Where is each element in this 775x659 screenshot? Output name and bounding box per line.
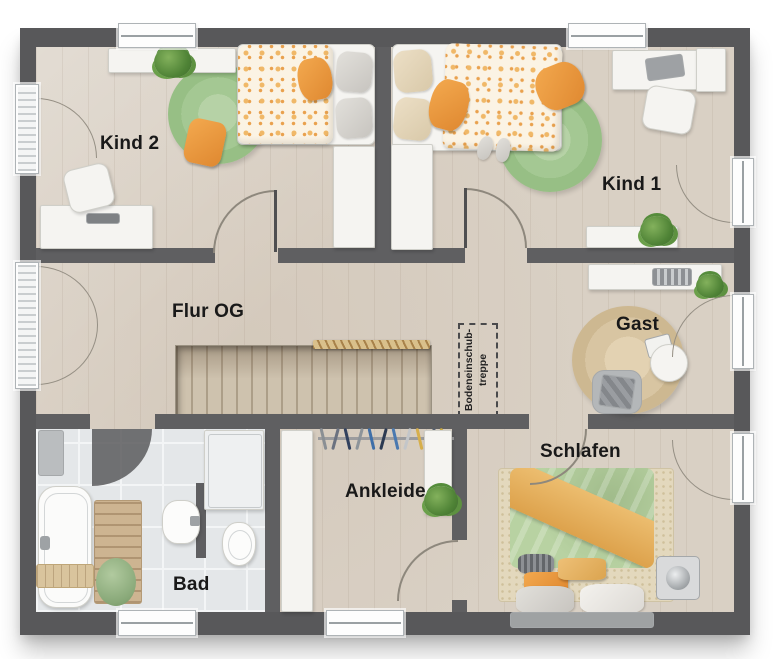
- room-label-kind1: Kind 1: [602, 174, 661, 196]
- room-label-flur: Flur OG: [172, 301, 244, 323]
- pillow-schlafen-a: [516, 586, 574, 614]
- wall-corridor-bottom-b: [155, 414, 529, 429]
- pillow-kind1-a: [392, 48, 434, 93]
- attic-ladder-label-line2: treppe: [477, 354, 489, 386]
- stair-railing: [313, 340, 430, 349]
- plaid-pillow-gast: [598, 374, 636, 410]
- floorplan-canvas: Bodeneinschub- treppe: [0, 0, 775, 659]
- window-right-kind1: [732, 158, 754, 226]
- wall-gast-top: [527, 248, 734, 263]
- wall-ankleide-schlafen-stub: [452, 600, 467, 612]
- room-label-kind2: Kind 2: [100, 133, 159, 155]
- orange-pillow-schlafen-b: [558, 558, 606, 580]
- window-top-kind1: [568, 23, 646, 48]
- towels-bad: [96, 558, 136, 606]
- potted-plant-gast: [696, 274, 724, 298]
- window-top-kind2: [118, 23, 196, 48]
- window-left-flur: [15, 262, 39, 389]
- cabinet-bad: [38, 430, 64, 476]
- radiator-stripes: [18, 87, 36, 171]
- basin-faucet-bad: [190, 516, 200, 526]
- stairwell-opening: [175, 345, 432, 420]
- potted-plant-kind2: [154, 46, 192, 78]
- door-leaf-kind1: [464, 188, 467, 248]
- wardrobe-kind2: [333, 146, 375, 248]
- door-leaf-kind2: [274, 190, 277, 252]
- shower-tray-line: [208, 434, 262, 508]
- attic-ladder-label-line1: Bodeneinschub-: [463, 329, 475, 411]
- window-left-kind2: [15, 84, 39, 174]
- wall-ankleide-schlafen: [452, 429, 467, 540]
- wardrobe-kind1: [391, 144, 433, 250]
- wall-corridor-bottom-a: [36, 414, 90, 429]
- window-bottom-ankleide: [326, 610, 404, 636]
- window-right-schlafen: [732, 433, 754, 503]
- books-gast: [652, 268, 692, 286]
- room-label-schlafen: Schlafen: [540, 441, 621, 463]
- desk-chair-kind1: [641, 84, 698, 136]
- window-right-gast: [732, 294, 754, 369]
- window-bottom-bad: [118, 610, 196, 636]
- room-label-gast: Gast: [616, 314, 659, 336]
- tub-faucet-bad: [40, 536, 50, 550]
- keyboard-kind2: [86, 213, 120, 224]
- pillow-kind2-b: [335, 97, 374, 139]
- window-glass-line: [571, 35, 643, 37]
- wall-gast-schlafen: [588, 414, 734, 429]
- window-glass-line: [329, 622, 401, 624]
- tub-caddy-bad: [36, 564, 94, 588]
- cabinet-kind1: [696, 48, 726, 92]
- window-glass-line: [742, 161, 744, 223]
- wall-corridor-top-b: [278, 248, 465, 263]
- wardrobe-ankleide: [281, 430, 313, 612]
- bed-base-schlafen: [510, 612, 654, 628]
- striped-pillow-schlafen: [518, 554, 554, 574]
- room-label-bad: Bad: [173, 574, 210, 596]
- window-glass-line: [121, 35, 193, 37]
- desk-kind2: [40, 205, 153, 249]
- potted-plant-kind1: [640, 216, 674, 246]
- toilet-seat-line: [228, 530, 252, 560]
- wall-between-kids: [375, 47, 391, 248]
- potted-plant-ankleide: [424, 486, 458, 516]
- room-label-ankleide: Ankleide: [345, 481, 426, 503]
- bed-schlafen: [510, 468, 654, 618]
- window-glass-line: [742, 297, 744, 366]
- wall-corridor-top-a: [36, 248, 215, 263]
- pillow-kind1-b: [392, 96, 434, 142]
- window-glass-line: [121, 622, 193, 624]
- pillow-schlafen-b: [580, 584, 644, 614]
- pillow-kind2-a: [334, 51, 373, 94]
- lamp-schlafen: [666, 566, 690, 590]
- wall-bad-ankleide: [265, 429, 280, 612]
- window-glass-line: [742, 436, 744, 500]
- radiator-stripes: [18, 265, 36, 386]
